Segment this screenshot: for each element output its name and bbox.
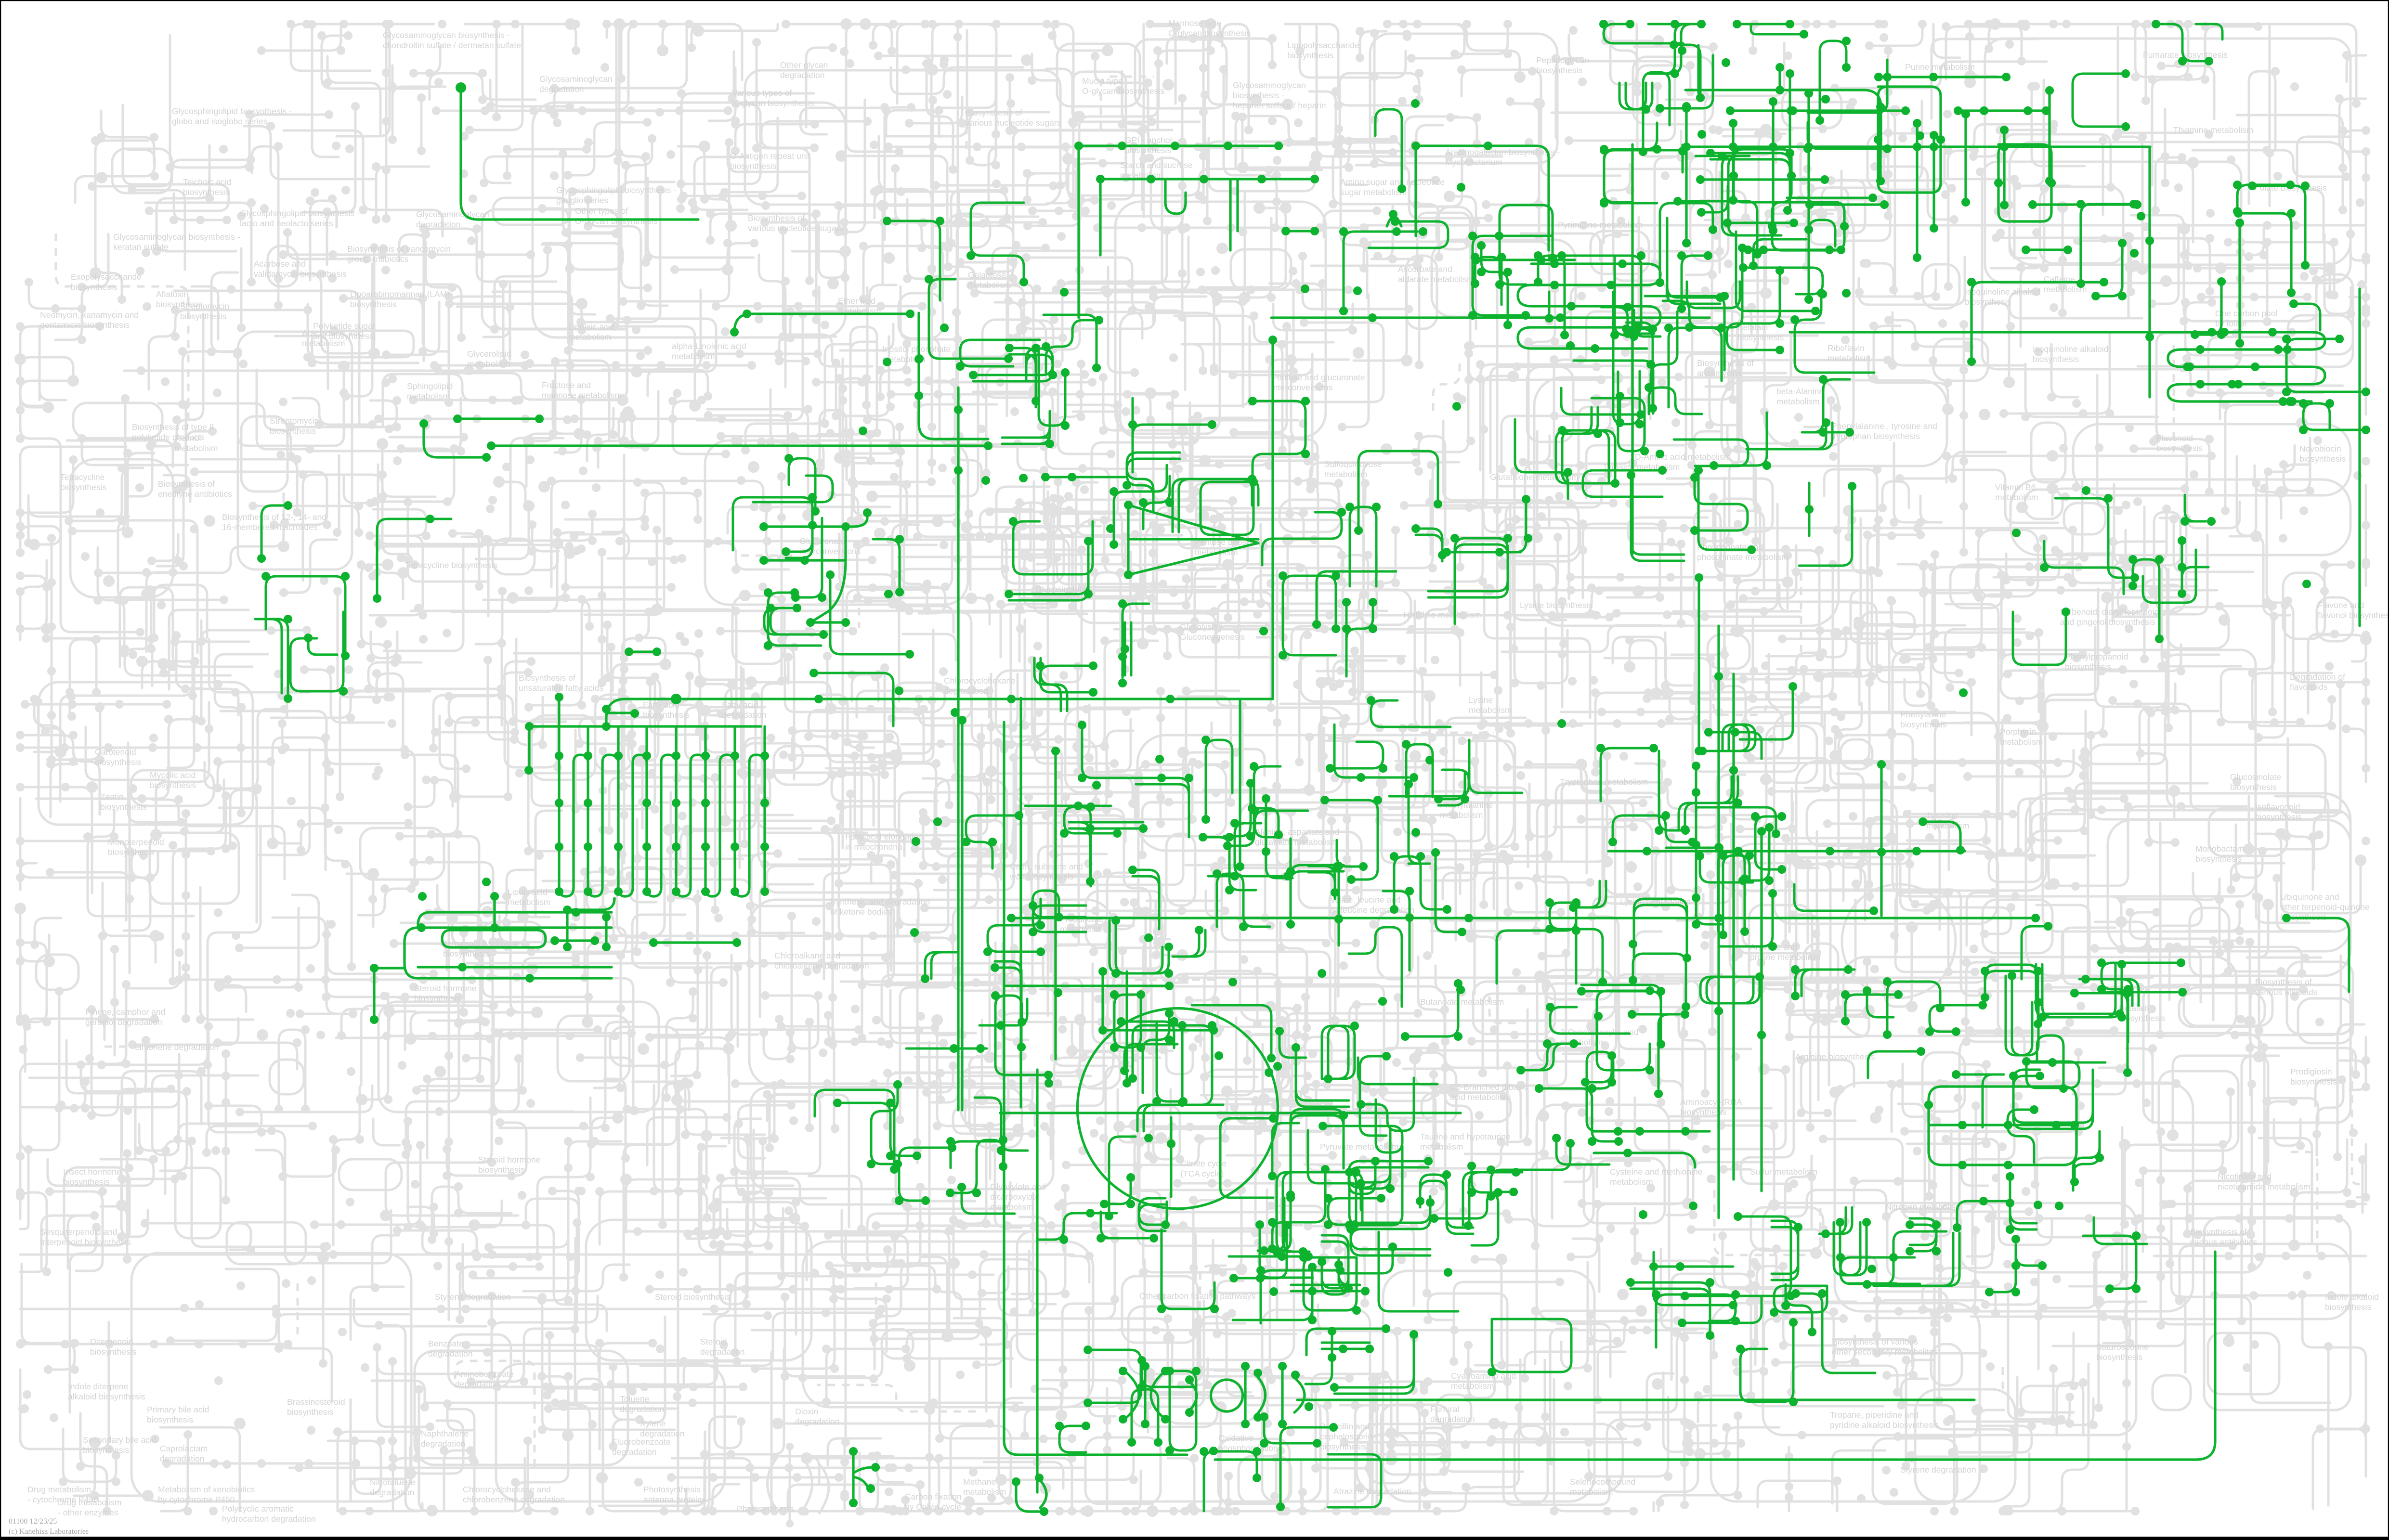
svg-text:other terpenoid-quinone: other terpenoid-quinone [2280,902,2370,912]
svg-text:other secondary metabolites: other secondary metabolites [1832,1347,1938,1357]
svg-text:chondroitin sulfate / dermatan: chondroitin sulfate / dermatan sulfate [383,40,521,50]
svg-text:nicotinamide metabolism: nicotinamide metabolism [2218,1182,2311,1191]
svg-text:biosynthesis: biosynthesis [90,1347,137,1357]
svg-text:Tyrosine: Tyrosine [1926,811,1958,820]
svg-text:triterpenoid biosynthesis: triterpenoid biosynthesis [40,1237,131,1247]
svg-text:Isoflavonoid: Isoflavonoid [2255,802,2300,812]
svg-text:biosynthesis: biosynthesis [2096,1352,2143,1362]
svg-text:degradation: degradation [700,1347,744,1357]
svg-text:globo and isoglobo series: globo and isoglobo series [172,116,268,126]
svg-text:Butanoate metabolism: Butanoate metabolism [1420,997,1504,1007]
svg-text:Biosynthesis of: Biosynthesis of [966,108,1022,117]
svg-text:Insect hormone: Insect hormone [63,1167,121,1177]
svg-text:interconversions: interconversions [1271,383,1333,392]
svg-text:Diterpenoid: Diterpenoid [90,1337,133,1346]
svg-text:degradation: degradation [370,1488,414,1497]
svg-text:various alkaloids: various alkaloids [2255,987,2318,997]
svg-text:Lysine: Lysine [1469,695,1493,705]
svg-text:Cysteine and methionine: Cysteine and methionine [1610,1167,1703,1177]
svg-text:various antibiotics: various antibiotics [2190,1237,2257,1247]
svg-text:Naphthalene: Naphthalene [421,1429,469,1438]
svg-text:Biosynthesis of: Biosynthesis of [158,479,215,489]
svg-text:Tetracycline: Tetracycline [60,472,104,482]
svg-text:biosynthesis: biosynthesis [1287,51,1334,60]
svg-text:Biosynthesis of: Biosynthesis of [2190,1227,2247,1237]
svg-text:Other glycan: Other glycan [780,60,828,70]
svg-text:Gluconeogenesis: Gluconeogenesis [1180,632,1245,642]
svg-text:biosynthesis: biosynthesis [71,282,117,292]
svg-text:Streptomycin: Streptomycin [180,301,229,311]
svg-text:Amino sugar and nucleotide: Amino sugar and nucleotide [1340,177,1445,187]
svg-text:Lysine biosynthesis: Lysine biosynthesis [1520,600,1593,610]
svg-text:validamycin biosynthesis: validamycin biosynthesis [254,269,347,279]
svg-text:Various types of: Various types of [732,88,792,98]
svg-text:metabolism: metabolism [467,359,510,369]
svg-text:biosynthesis: biosynthesis [2156,443,2203,453]
svg-text:biosynthesis: biosynthesis [643,710,690,720]
svg-text:Inositol phosphate: Inositol phosphate [882,344,951,354]
svg-text:Linoleic acid: Linoleic acid [568,322,614,332]
svg-text:Histidine metabolism: Histidine metabolism [1403,610,1481,620]
svg-text:Indole diterpene: Indole diterpene [68,1382,129,1391]
svg-text:Mucin type: Mucin type [1082,76,1123,86]
svg-text:Other types of: Other types of [575,206,628,216]
svg-text:Taurine and hypotaurine: Taurine and hypotaurine [1420,1132,1511,1141]
svg-text:biosynthesis: biosynthesis [2290,1077,2337,1087]
svg-text:enediyne antibiotics: enediyne antibiotics [158,489,232,499]
svg-text:Neomycin, kanamycin and: Neomycin, kanamycin and [40,310,139,320]
svg-text:metabolism: metabolism [1570,1487,1613,1497]
svg-text:O-glycan biosynthesis: O-glycan biosynthesis [575,216,657,226]
svg-text:in mitochondria: in mitochondria [845,842,902,852]
svg-text:degradation: degradation [428,1349,472,1359]
svg-text:Vitamin B6: Vitamin B6 [1995,482,2036,492]
svg-text:and gingerol biosynthesis: and gingerol biosynthesis [2060,617,2155,627]
svg-text:degradation: degradation [620,1404,664,1414]
svg-text:Mannose type: Mannose type [1168,18,1221,28]
svg-text:Glycerolipid: Glycerolipid [467,349,511,359]
svg-text:Pinene, camphor and: Pinene, camphor and [85,1007,165,1017]
svg-text:metabolism: metabolism [990,1202,1033,1212]
svg-text:metabolism: metabolism [508,897,550,907]
svg-text:Biosynthesis of: Biosynthesis of [519,673,575,683]
svg-text:metabolism: metabolism [672,351,715,361]
svg-text:degradation: degradation [722,710,766,720]
svg-text:Limonene degradation: Limonene degradation [135,1042,219,1052]
svg-text:Styrene degradation: Styrene degradation [1900,1465,1976,1475]
svg-text:N-glycan biosynthesis: N-glycan biosynthesis [732,98,814,108]
svg-text:Biosynthesis of various: Biosynthesis of various [1832,1337,1918,1346]
svg-text:antenna proteins: antenna proteins [643,1495,706,1504]
svg-text:biosynthesis: biosynthesis [147,1415,194,1424]
svg-text:Novobiocin: Novobiocin [2299,444,2341,453]
svg-text:- other enzymes: - other enzymes [58,1508,118,1517]
svg-text:Monobactam: Monobactam [2195,844,2244,854]
svg-text:Peptidoglycan: Peptidoglycan [1536,55,1589,65]
svg-text:biosynthesis: biosynthesis [2299,454,2346,464]
svg-text:biosynthesis: biosynthesis [150,780,196,790]
svg-text:various nucleotide sugars: various nucleotide sugars [748,223,844,233]
svg-text:Lipoic acid: Lipoic acid [508,887,548,897]
svg-text:Photosynthesis -: Photosynthesis - [643,1485,706,1494]
svg-text:degradation: degradation [160,1454,204,1463]
svg-text:Ascorbate and: Ascorbate and [1398,264,1452,274]
svg-text:metabolism: metabolism [1610,1177,1653,1187]
svg-text:chloroalkene degradation: chloroalkene degradation [774,961,869,971]
svg-text:Biosynthesis of type II: Biosynthesis of type II [132,422,214,432]
svg-text:Fatty acid elongation: Fatty acid elongation [845,832,923,841]
svg-text:degradation: degradation [421,1439,465,1449]
svg-text:Thiamine metabolism: Thiamine metabolism [2173,125,2253,135]
svg-text:ganglio series: ganglio series [556,195,608,205]
svg-text:Tropane, piperidine and: Tropane, piperidine and [1830,1410,1919,1420]
svg-text:Mycolic acid: Mycolic acid [150,770,196,780]
svg-text:biosynthesis: biosynthesis [443,949,490,958]
svg-text:biosynthesis -: biosynthesis - [1233,91,1284,100]
svg-text:Ubiquinone and: Ubiquinone and [2280,892,2339,902]
svg-text:biosynthesis: biosynthesis [108,847,155,857]
svg-text:Methane: Methane [963,1477,996,1487]
svg-text:biosynthesis: biosynthesis [183,187,230,197]
svg-text:dicarboxylate: dicarboxylate [990,1192,1040,1202]
svg-text:degradation: degradation [455,1379,499,1389]
svg-text:biosynthesis: biosynthesis [478,1165,525,1175]
svg-text:biosynthesis: biosynthesis [2230,782,2277,792]
svg-text:Starch and sucrose: Starch and sucrose [1120,160,1193,170]
svg-text:Glycosphingolipid biosynthesis: Glycosphingolipid biosynthesis - [556,185,676,195]
svg-text:Chlorocyclohexane and: Chlorocyclohexane and [463,1485,551,1494]
svg-text:Zeatin: Zeatin [100,792,124,802]
svg-text:metabolism: metabolism [1828,353,1870,363]
svg-text:D-Amino acid metabolism: D-Amino acid metabolism [1635,452,1731,462]
svg-text:Ether lipid: Ether lipid [838,296,875,306]
svg-text:Steroid hormone: Steroid hormone [414,984,476,993]
svg-text:Primary bile acid: Primary bile acid [147,1405,209,1414]
svg-text:O-Antigen repeat unit: O-Antigen repeat unit [730,151,810,161]
svg-text:Sesquiterpenoid and: Sesquiterpenoid and [40,1227,117,1237]
svg-text:Pentose and glucuronate: Pentose and glucuronate [1271,373,1365,382]
svg-text:metabolism: metabolism [1776,397,1819,406]
svg-text:metabolism: metabolism [1469,705,1512,715]
svg-text:Metabolism of xenobiotics: Metabolism of xenobiotics [158,1485,255,1494]
svg-text:Flavonoid: Flavonoid [2156,433,2193,443]
svg-text:One carbon pool: One carbon pool [2215,309,2277,318]
svg-text:Tryptophan metabolism: Tryptophan metabolism [1560,777,1648,787]
svg-text:Prodigiosin: Prodigiosin [2290,1067,2332,1076]
svg-text:16-membered macrolides: 16-membered macrolides [222,522,318,532]
svg-text:biosynthesis: biosynthesis [1536,65,1583,75]
svg-text:Pyrimidine metabolism: Pyrimidine metabolism [1558,220,1643,230]
svg-text:hydrocarbon degradation: hydrocarbon degradation [222,1514,316,1524]
svg-text:(TCA cycle): (TCA cycle) [1180,1169,1224,1178]
svg-text:Stilbenoid, diarylheptanoid: Stilbenoid, diarylheptanoid [2060,607,2159,617]
svg-text:Riboflavin: Riboflavin [1828,343,1865,353]
svg-text:- cytochrome P450: - cytochrome P450 [27,1495,98,1504]
svg-text:group antibiotics: group antibiotics [347,254,409,264]
svg-text:(c) Kanehisa Laboratories: (c) Kanehisa Laboratories [9,1527,89,1536]
svg-text:biosynthesis: biosynthesis [730,161,777,171]
svg-text:Staurosporine: Staurosporine [2096,1342,2149,1352]
svg-text:Selenocompound: Selenocompound [1570,1477,1635,1487]
svg-text:Valine, leucine and: Valine, leucine and [1330,895,1401,905]
svg-text:degradation: degradation [539,84,584,94]
svg-text:Pyruvate metabolism: Pyruvate metabolism [1320,1142,1398,1152]
svg-text:Purine metabolism: Purine metabolism [1905,62,1975,72]
svg-text:biosynthesis: biosynthesis [1900,720,1947,729]
svg-text:degradation: degradation [780,70,824,80]
svg-text:Glycolysis /: Glycolysis / [1180,622,1223,632]
svg-text:Teichoic acid: Teichoic acid [183,177,231,187]
svg-text:biosynthesis: biosynthesis [1737,333,1784,342]
svg-text:Secondary bile acid: Secondary bile acid [83,1435,157,1445]
svg-text:Sphingolipid: Sphingolipid [407,381,453,391]
svg-text:biosynthesis: biosynthesis [63,1177,110,1187]
svg-text:Fatty acid: Fatty acid [722,700,758,710]
svg-text:metabolism: metabolism [175,443,218,453]
svg-text:biosynthesis: biosynthesis [100,802,147,812]
svg-text:O-glycan biosynthesis: O-glycan biosynthesis [1082,86,1164,96]
svg-text:pyridine alkaloid biosynthesis: pyridine alkaloid biosynthesis [1830,1420,1939,1430]
svg-text:aldarate metabolism: aldarate metabolism [1398,274,1474,284]
svg-text:ansamycins: ansamycins [1697,368,1742,378]
svg-text:Lipoarabinomannan (LAM): Lipoarabinomannan (LAM) [350,289,450,299]
svg-text:metabolism: metabolism [2000,737,2043,747]
svg-text:Drug metabolism: Drug metabolism [27,1485,91,1494]
svg-text:Fructose and: Fructose and [542,380,591,390]
svg-text:Sulfoquinovose: Sulfoquinovose [1324,459,1382,469]
svg-text:GPI - anchor: GPI - anchor [1125,135,1173,145]
svg-text:degradation: degradation [416,220,460,229]
svg-text:Biosynthesis of 12-, 14- and: Biosynthesis of 12-, 14- and [222,512,326,522]
svg-text:Glycosaminoglycan: Glycosaminoglycan [416,209,489,219]
svg-text:metabolism: metabolism [963,1487,1006,1497]
svg-text:Glucosinolate: Glucosinolate [2230,772,2281,782]
svg-text:keratan sulfate: keratan sulfate [113,242,169,252]
svg-text:degradation: degradation [612,1447,656,1457]
svg-text:Sulfur metabolism: Sulfur metabolism [1750,1167,1817,1177]
svg-text:biosynthesis: biosynthesis [2325,1302,2372,1312]
svg-text:biosynthesis: biosynthesis [83,1445,130,1455]
svg-text:by cytochrome P450: by cytochrome P450 [158,1495,235,1504]
svg-text:cephalosporin: cephalosporin [1320,1432,1372,1441]
svg-text:Retinol: Retinol [175,433,201,443]
svg-text:Carbon fixation: Carbon fixation [905,1492,962,1501]
svg-text:Glycosphingolipid biosynthesis: Glycosphingolipid biosynthesis - [240,208,360,218]
svg-text:alpha-Linolenic acid: alpha-Linolenic acid [672,341,746,351]
svg-text:Indole alkaloid: Indole alkaloid [2325,1292,2379,1302]
svg-text:metabolism: metabolism [1995,492,2038,502]
svg-text:by Calvin cycle: by Calvin cycle [905,1502,961,1512]
svg-text:degradation: degradation [944,686,988,696]
svg-text:metabolism: metabolism [1451,1381,1494,1391]
svg-text:Degradation of: Degradation of [2290,672,2345,682]
svg-text:Oxidative: Oxidative [1218,1433,1253,1443]
svg-text:Arginine biosynthesis: Arginine biosynthesis [1795,1052,1875,1061]
svg-text:degradation: degradation [795,1417,839,1426]
svg-text:unsaturated fatty acids: unsaturated fatty acids [519,683,603,693]
svg-text:lacto and neolacto series: lacto and neolacto series [240,219,333,228]
svg-text:metabolism: metabolism [407,391,450,401]
svg-text:Tetracycline biosynthesis: Tetracycline biosynthesis [405,560,498,570]
svg-text:Biosynthesis of: Biosynthesis of [748,213,805,223]
svg-text:biosynthesis: biosynthesis [2033,354,2079,364]
svg-text:Steroid: Steroid [700,1337,727,1346]
svg-text:Aminobenzoate: Aminobenzoate [455,1369,514,1379]
svg-text:metabolism: metabolism [568,332,611,342]
svg-text:Phenylpropanoid: Phenylpropanoid [2065,652,2128,661]
svg-text:Monoterpenoid: Monoterpenoid [108,837,164,847]
svg-text:Alanine, aspartate and: Alanine, aspartate and [1255,827,1339,837]
svg-text:wax biosynthesis: wax biosynthesis [1009,872,1074,881]
svg-text:beta-Alanine: beta-Alanine [1776,387,1824,396]
svg-text:Dioxin: Dioxin [795,1407,819,1416]
svg-text:Aflatoxin: Aflatoxin [156,289,188,299]
svg-text:of ketone bodies: of ketone bodies [830,907,892,917]
svg-text:Phenylazine: Phenylazine [1900,710,1946,719]
svg-text:Chlorocyclohexane: Chlorocyclohexane [944,676,1016,686]
svg-text:Glycosaminoglycan: Glycosaminoglycan [539,74,613,84]
svg-text:Glycosaminoglycan: Glycosaminoglycan [1233,80,1306,90]
svg-text:biosynthesis: biosynthesis [270,426,316,436]
svg-text:Brassinosteroid: Brassinosteroid [287,1397,345,1407]
svg-text:C5-Branched dibasic: C5-Branched dibasic [1450,1082,1528,1092]
svg-text:Mycobacterium: Mycobacterium [1445,157,1502,167]
svg-text:Nicotinate and: Nicotinate and [2218,1172,2272,1181]
svg-text:Lipopolysaccharide: Lipopolysaccharide [1287,40,1359,50]
svg-text:Glycosaminoglycan biosynthesis: Glycosaminoglycan biosynthesis - [383,30,510,40]
svg-text:biosynthesis: biosynthesis [350,299,397,309]
svg-text:Arachidonic acid: Arachidonic acid [302,328,364,338]
svg-text:metabolism: metabolism [968,280,1011,290]
svg-text:biosynthesis: biosynthesis [95,757,142,767]
svg-text:biosynthesis: biosynthesis [1320,1442,1367,1451]
svg-text:Isoquinoline alkaloid: Isoquinoline alkaloid [2033,344,2109,354]
svg-text:Biosynthesis of vancomycin: Biosynthesis of vancomycin [347,244,451,254]
svg-text:Benzoate: Benzoate [428,1339,464,1348]
svg-text:Synthesis and degradation: Synthesis and degradation [830,897,930,906]
svg-text:Caprolactam: Caprolactam [160,1444,208,1453]
svg-text:Glycosaminoglycan biosynthesis: Glycosaminoglycan biosynthesis - [113,232,240,242]
svg-text:biosynthesis: biosynthesis [2255,812,2302,822]
svg-text:metabolism: metabolism [1440,810,1483,820]
svg-text:Other carbon fixation pathways: Other carbon fixation pathways [1139,1291,1255,1301]
svg-text:Biosynthesis of: Biosynthesis of [2255,977,2312,987]
svg-text:biosynthesis: biosynthesis [414,994,461,1003]
svg-text:Fluorobenzoate: Fluorobenzoate [612,1437,671,1447]
svg-text:Flavone and: Flavone and [2318,600,2364,610]
svg-text:Galactose: Galactose [968,270,1006,280]
svg-text:isoleucine degradation: isoleucine degradation [1330,905,1414,915]
svg-text:heparan sulfate / heparin: heparan sulfate / heparin [1233,101,1326,110]
svg-text:Polycyclic aromatic: Polycyclic aromatic [222,1504,294,1514]
svg-text:biosynthesis: biosynthesis [60,482,107,492]
svg-text:metabolism: metabolism [1420,1142,1463,1152]
svg-text:Exopolysaccharide: Exopolysaccharide [71,272,142,282]
svg-text:glutamate metabolism: glutamate metabolism [1255,837,1337,847]
svg-text:Glycosphingolipid biosynthesis: Glycosphingolipid biosynthesis - [172,106,292,116]
svg-text:Steroid hormone: Steroid hormone [478,1155,540,1165]
svg-text:gentamicin biosynthesis: gentamicin biosynthesis [40,320,130,330]
svg-text:Isoquinoline alkaloid: Isoquinoline alkaloid [1965,287,2041,297]
svg-text:Steroid biosynthesis: Steroid biosynthesis [655,1292,731,1302]
svg-text:Toluene: Toluene [620,1394,649,1404]
svg-text:phosphinate metabolism: phosphinate metabolism [1697,552,1788,562]
svg-text:sugar metabolism: sugar metabolism [1340,187,1407,197]
svg-text:Styrene degradation: Styrene degradation [435,1292,511,1302]
svg-text:biosynthesis: biosynthesis [180,311,227,321]
svg-text:mannose metabolism: mannose metabolism [542,390,622,400]
svg-text:acid metabolism: acid metabolism [1450,1092,1511,1102]
svg-text:geraniol degradation: geraniol degradation [85,1017,162,1027]
svg-text:Arabinogalactan biosynthesis -: Arabinogalactan biosynthesis - [1445,147,1560,157]
svg-text:flavonoids: flavonoids [2290,682,2328,692]
svg-text:various nucleotide sugars: various nucleotide sugars [966,118,1061,128]
svg-text:Chloroalkane and: Chloroalkane and [774,951,840,960]
svg-text:chlorobenzene degradation: chlorobenzene degradation [463,1495,565,1504]
svg-text:Atrazine degradation: Atrazine degradation [1333,1487,1411,1496]
svg-text:alkaloid biosynthesis: alkaloid biosynthesis [68,1392,145,1401]
svg-text:degradation: degradation [1430,1414,1475,1424]
svg-text:2-Oxocarboxylic acid: 2-Oxocarboxylic acid [1560,1027,1638,1037]
svg-text:Carotenoid: Carotenoid [95,747,136,757]
svg-text:Glucosinolate: Glucosinolate [1035,584,1086,594]
svg-text:biosynthesis: biosynthesis [287,1407,334,1417]
svg-text:flavonol biosynthesis: flavonol biosynthesis [2318,610,2389,620]
svg-text:Furfural: Furfural [1430,1404,1459,1414]
svg-text:Nitrotoluene: Nitrotoluene [370,1477,415,1487]
svg-text:biosynthesis: biosynthesis [2195,854,2242,864]
svg-text:metabolism: metabolism [1324,469,1367,479]
svg-text:O-glycan biosynthesis: O-glycan biosynthesis [1168,28,1251,38]
svg-text:Streptomycin: Streptomycin [270,416,319,426]
svg-text:Photosynthesis: Photosynthesis [737,1504,794,1514]
svg-text:metabolism: metabolism [302,338,345,348]
svg-text:01100 12/23/25: 01100 12/23/25 [9,1517,57,1526]
svg-text:biosynthesis: biosynthesis [2065,662,2112,672]
svg-text:Acarbose and: Acarbose and [254,259,306,269]
svg-text:Xylene: Xylene [640,1419,666,1428]
svg-text:Nitrogen metabolism: Nitrogen metabolism [1885,1202,1962,1212]
svg-text:Porphyrin: Porphyrin [2000,727,2036,737]
